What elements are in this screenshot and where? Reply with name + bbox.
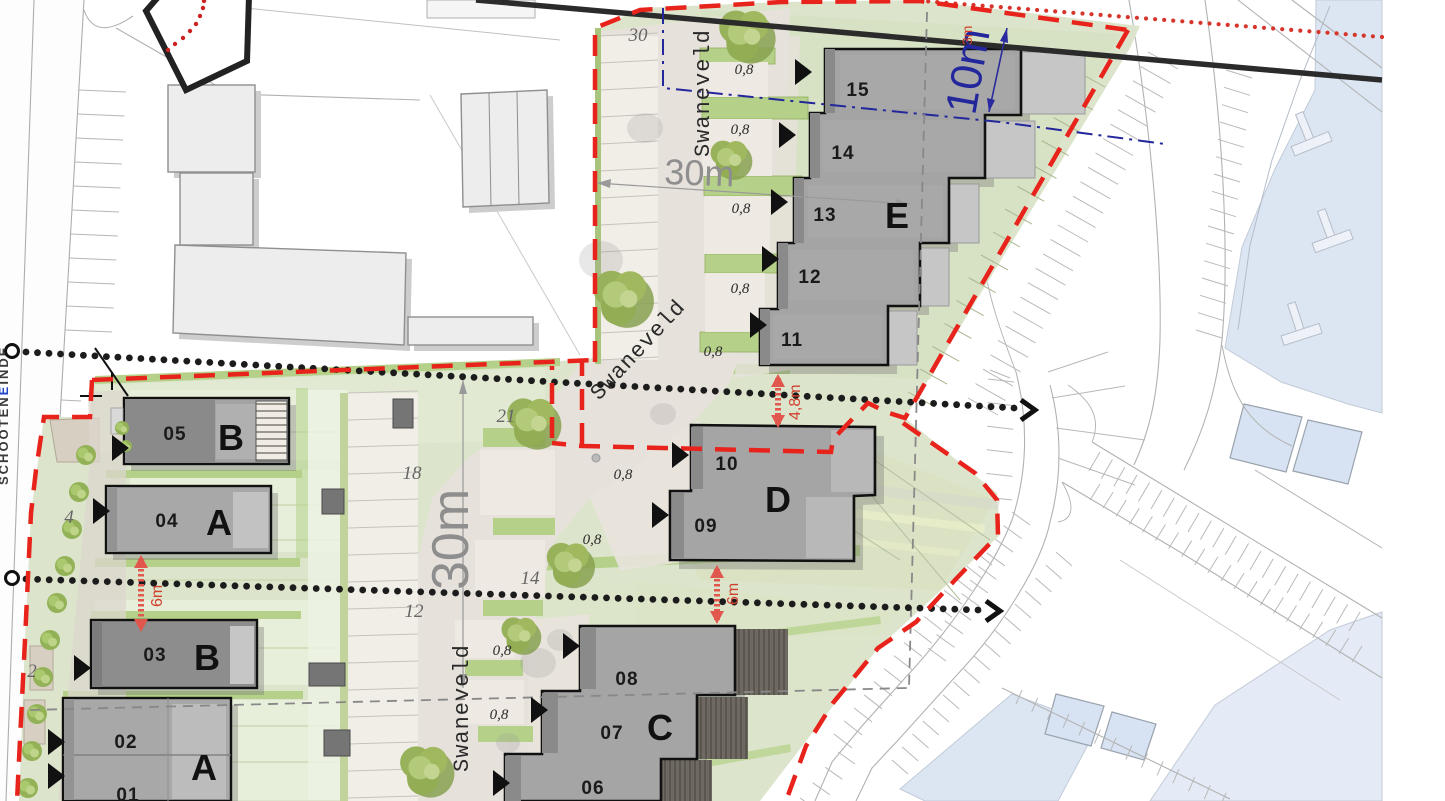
svg-text:06: 06 [581, 778, 604, 799]
svg-text:B: B [194, 637, 220, 678]
svg-text:13: 13 [813, 205, 836, 226]
svg-text:0,8: 0,8 [704, 344, 723, 360]
svg-text:0,8: 0,8 [493, 643, 512, 659]
svg-text:0,8: 0,8 [731, 281, 750, 297]
svg-text:02: 02 [114, 732, 137, 753]
svg-text:08: 08 [615, 669, 638, 690]
svg-text:4: 4 [64, 507, 74, 528]
svg-text:0,8: 0,8 [490, 707, 509, 723]
svg-text:A: A [206, 502, 232, 543]
svg-text:0,8: 0,8 [583, 532, 602, 548]
svg-text:2: 2 [27, 661, 37, 682]
svg-text:0,8: 0,8 [735, 62, 754, 78]
svg-text:SCHOOTENEINDE: SCHOOTENEINDE [0, 346, 11, 485]
svg-text:B: B [218, 417, 244, 458]
svg-text:14: 14 [831, 143, 854, 164]
svg-text:14: 14 [521, 568, 541, 589]
svg-text:15: 15 [846, 80, 869, 101]
svg-text:C: C [647, 707, 673, 748]
svg-text:D: D [765, 479, 791, 520]
svg-text:21: 21 [497, 406, 516, 427]
svg-text:11: 11 [781, 330, 803, 351]
svg-text:01: 01 [116, 785, 139, 801]
svg-text:12: 12 [798, 267, 821, 288]
svg-text:4,8m: 4,8m [787, 384, 804, 420]
svg-text:05: 05 [163, 424, 186, 445]
svg-text:6m: 6m [725, 583, 742, 605]
svg-text:3m: 3m [959, 26, 975, 45]
svg-text:30m: 30m [422, 489, 480, 590]
svg-text:30: 30 [628, 25, 649, 46]
svg-text:Swaneveld: Swaneveld [450, 644, 475, 772]
svg-text:10: 10 [715, 454, 738, 475]
svg-text:0,8: 0,8 [614, 467, 633, 483]
svg-text:Swaneveld: Swaneveld [691, 29, 716, 157]
svg-text:18: 18 [403, 463, 423, 484]
svg-text:07: 07 [600, 723, 623, 744]
svg-text:A: A [191, 747, 217, 788]
svg-text:E: E [885, 195, 909, 236]
svg-text:0,8: 0,8 [731, 122, 750, 138]
svg-text:03: 03 [143, 645, 166, 666]
svg-text:09: 09 [694, 516, 717, 537]
svg-text:04: 04 [155, 511, 178, 532]
svg-text:0,8: 0,8 [732, 201, 751, 217]
svg-text:12: 12 [405, 601, 425, 622]
svg-text:6m: 6m [149, 585, 166, 607]
